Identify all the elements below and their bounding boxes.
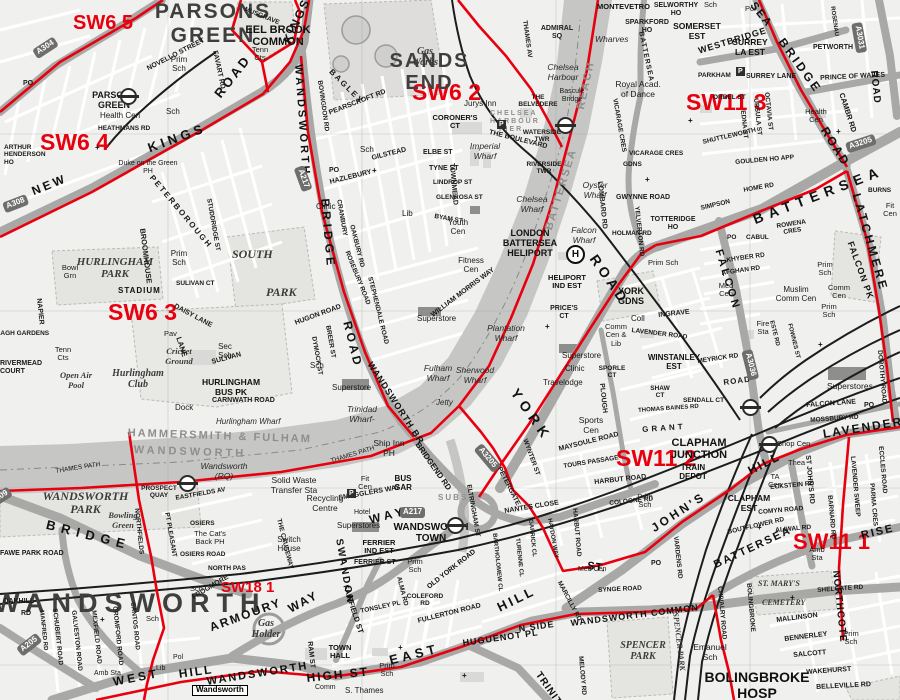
minor-roads-label: COLEFORD RD — [404, 593, 446, 608]
pois-label: Thea — [788, 459, 805, 467]
minor-roads-label: TOURS PASSAGE — [563, 454, 619, 470]
wharves-label: Imperial Wharf — [460, 142, 510, 161]
rail-station-icon — [742, 399, 759, 416]
minor-roads-label: BATTERSEA — [636, 31, 654, 83]
park-labels-label: PARK — [266, 286, 296, 299]
pois-label: Royal Acad. of Dance — [608, 80, 668, 99]
minor-roads-label: STEPHENDALE ROAD — [366, 276, 390, 345]
heliport-icon: H — [566, 245, 585, 264]
minor-roads-label: GALVESTON ROAD — [70, 610, 84, 671]
pier-icon — [557, 117, 574, 134]
rail-station-icon — [761, 436, 778, 453]
minor-roads-label: RIVERSIDE TWR — [523, 161, 565, 176]
minor-roads-label: KHYBER RD — [726, 252, 765, 265]
crosses-label: + — [462, 672, 467, 681]
pois-label: Sch — [146, 615, 159, 623]
places-label: WINSTANLEY EST — [645, 354, 703, 372]
crosses-label: + — [836, 128, 841, 137]
minor-roads-label: NAPIER — [34, 298, 45, 325]
pois-label: Jurys Inn — [464, 100, 496, 109]
pois-label: Health Cen — [798, 108, 834, 125]
town-boxes-label: Wandsworth — [192, 685, 248, 696]
wharves-label: Plantation Wharf — [479, 324, 533, 343]
pois-label: Coll — [631, 315, 645, 324]
pois-label: Switch House — [268, 536, 310, 554]
pois-label: Youth Cen — [441, 219, 475, 237]
pois-label: Superstores — [827, 382, 873, 392]
park-labels-label: Open Air Pool — [52, 371, 100, 390]
pois-label: Sch — [190, 585, 203, 593]
minor-roads-label: ORBEL ST — [713, 94, 746, 101]
pois-label: Sch — [360, 146, 374, 155]
shields-label: A3205 — [845, 134, 876, 153]
minor-roads-label: SIMPSON — [700, 198, 731, 212]
pois-label: Travelodge — [543, 379, 583, 388]
crosses-label: + — [398, 644, 403, 653]
pois-label: Fit Cen — [352, 475, 378, 492]
minor-roads-label: PO — [727, 234, 736, 241]
pois-label: Pav — [164, 330, 177, 338]
pois-label: Tenn Cts — [48, 346, 78, 363]
minor-roads-label: GRANT — [642, 423, 686, 435]
places-label: SOMERSET EST — [668, 22, 726, 41]
minor-roads-label: PO — [23, 80, 33, 88]
pois-label: Prim Sch — [630, 493, 660, 510]
pois-label: Amb Sta — [803, 546, 831, 563]
parking-icon: P — [497, 120, 506, 129]
pois-label: Comm Cen & Lib — [598, 323, 634, 348]
pois-label: Tenn Cts — [245, 46, 275, 63]
pois-label: Superstore — [417, 315, 456, 324]
minor-roads-label: WYNTER ST — [521, 438, 541, 476]
minor-roads-label: TOTTERIDGE HO — [645, 216, 701, 232]
places-label: STADIUM — [118, 287, 161, 296]
minor-roads-label: BENNERLEY — [784, 631, 828, 644]
pois-label: The Cat's Back PH — [184, 530, 236, 547]
pier-icon — [179, 475, 196, 492]
pois-label: Prim Sch — [814, 303, 844, 320]
park-labels-label: Gas Holder — [242, 618, 290, 640]
street-map[interactable]: SW6 5SW6 2SW6 4SW11 3SW6 3SW11 2SW11 1SW… — [0, 0, 900, 700]
pois-label: Prim Sch — [836, 630, 866, 647]
minor-roads-label: HARBUT ROAD — [594, 474, 647, 487]
major-roads-label: TRINITY — [533, 670, 568, 700]
minor-roads-label: GDNS — [623, 161, 642, 168]
minor-roads-label: PARMA CRES — [868, 483, 879, 526]
minor-roads-label: GARRICK CL — [526, 519, 537, 557]
minor-roads-label: ARTHUR HENDERSON HO — [4, 144, 46, 166]
major-roads-label: WAY — [286, 589, 321, 616]
crosses-label: + — [100, 616, 105, 625]
places-label: FERRIER IND EST — [356, 539, 402, 556]
minor-roads-label: RIVERMEAD COURT — [0, 360, 42, 376]
major-roads-label: ROAD — [586, 252, 632, 308]
pois-label: Hotel — [354, 509, 370, 517]
minor-roads-label: SYNGE ROAD — [598, 585, 642, 595]
districts-label: SW6 5 — [73, 12, 133, 34]
pois-label: Fitness Cen — [452, 257, 490, 275]
minor-roads-label: FERRIER ST — [354, 559, 396, 567]
minor-roads-label: GWYNNE ROAD — [616, 194, 670, 202]
river-labels-label: WANDSWORTH — [134, 444, 247, 460]
wharves-label: Chelsea Harbour — [538, 63, 588, 82]
park-labels-label: Hurlingham Club — [104, 368, 172, 390]
minor-roads-label: BOVINGDON RD — [316, 80, 330, 132]
rail-station-icon — [447, 517, 464, 534]
minor-roads-label: NORTH PAS — [208, 565, 246, 572]
pois-label: Comm Cen — [821, 284, 857, 301]
parking-icon: P — [347, 489, 356, 498]
pois-label: Pol — [745, 5, 756, 13]
places-label: CLAPHAM JUNCTION — [660, 437, 738, 462]
minor-roads-label: SALCOTT — [793, 649, 827, 660]
pois-label: Med Cen — [578, 566, 606, 574]
crosses-label: + — [757, 524, 762, 533]
river-labels-label: HAMMERSMITH & FULHAM — [128, 427, 313, 446]
minor-roads-label: RANELAGH GARDENS — [0, 330, 49, 337]
shields-label: A3205 — [474, 443, 501, 473]
pois-label: Prim Sch — [400, 558, 430, 575]
minor-roads-label: OSIERS — [190, 520, 215, 527]
major-roads-label: WANDSWORTH — [206, 660, 309, 688]
park-labels-label: SPENCER PARK — [612, 640, 674, 662]
minor-roads-label: FAWE PARK ROAD — [0, 550, 64, 558]
park-labels-label: CEMETERY — [762, 599, 805, 608]
major-roads-label: OLD YORK ROAD — [426, 548, 478, 591]
minor-roads-label: PO — [651, 560, 661, 568]
pois-label: Emanuel Sch — [686, 643, 734, 662]
major-roads-label: ROAD — [340, 320, 364, 369]
pois-label: Muslim Comm Cen — [766, 286, 826, 304]
pois-label: Duke on the Green PH — [108, 160, 188, 176]
minor-roads-label: LAVENDER SWEEP — [849, 456, 862, 517]
minor-roads-label: PARKHAM — [698, 72, 731, 79]
park-labels-label: ST. MARY'S — [758, 580, 800, 589]
pois-label: TA Cen — [762, 473, 788, 490]
crosses-label: + — [688, 117, 693, 126]
minor-roads-label: BREER ST — [324, 325, 337, 359]
major-roads-label: HIGH ST — [306, 665, 370, 685]
minor-roads-label: PROSPECT QUAY — [137, 485, 181, 500]
minor-roads-label: ROWENA CRES — [770, 217, 814, 238]
minor-roads-label: MELODY RD — [577, 656, 588, 695]
wharves-label: Wharves — [595, 35, 629, 45]
major-roads-label: KINGS — [146, 121, 208, 156]
crosses-label: + — [645, 176, 650, 185]
minor-roads-label: DOROTHY ROAD — [876, 350, 888, 404]
pois-label: Pol — [173, 654, 183, 662]
pois-label: Lib — [402, 210, 413, 219]
pois-label: Shop Cen — [777, 440, 810, 448]
minor-roads-label: HOLMAN RD — [612, 230, 652, 237]
pois-label: Sports Cen — [573, 416, 609, 435]
minor-roads-label: TURENNE CL — [513, 538, 524, 577]
crosses-label: + — [95, 144, 100, 153]
minor-roads-label: FALCON LANE — [806, 399, 856, 410]
pois-label: Fit Cen — [876, 202, 900, 219]
shields-label: A209 — [0, 486, 13, 509]
minor-roads-label: GILSTEAD — [371, 146, 407, 162]
minor-roads-label: CRANBURY — [335, 199, 349, 237]
major-roads-label: WANDSWORTH — [292, 64, 312, 177]
pois-label: Prim Sch — [372, 662, 402, 679]
minor-roads-label: FAVART RD — [210, 50, 226, 90]
pois-label: Lib — [156, 665, 165, 673]
minor-roads-label: PO — [329, 167, 339, 175]
minor-roads-label: CHIVALRY ROAD — [716, 586, 728, 640]
minor-roads-label: SENDALL CT — [683, 397, 724, 404]
major-roads-label: NEW — [30, 172, 69, 198]
minor-roads-label: GLENROSA ST — [436, 194, 483, 201]
crosses-label: + — [372, 167, 377, 176]
minor-roads-label: BARTHOLOMEW CL — [490, 533, 503, 592]
pois-label: Sch — [166, 108, 180, 117]
minor-roads-label: ADMIRAL SQ — [536, 25, 578, 41]
places-label: HURLINGHAM BUS PK — [196, 378, 266, 397]
shields-label: A308 — [2, 194, 29, 213]
minor-roads-label: BOLINGBROKE — [745, 583, 756, 632]
crosses-label: + — [545, 323, 550, 332]
places-label: EEL BROOK COMMON — [228, 24, 328, 49]
wharves-label: Jetty — [436, 399, 453, 408]
places-label: TOWN HALL — [323, 644, 357, 661]
wharves-label: Falcon Wharf — [563, 226, 605, 245]
minor-roads-label: ROSENAU — [828, 6, 839, 37]
places-label: TRAIN DEPOT — [674, 464, 712, 482]
wharves-label: Sherwood Wharf — [450, 366, 500, 385]
wharves-label: Oyster Wharf — [574, 181, 616, 200]
minor-roads-label: SPARKFORD HO — [623, 19, 671, 35]
minor-roads-label: RD — [21, 610, 31, 618]
wharves-label: Chelsea Wharf — [510, 195, 554, 214]
minor-roads-label: HEATHMANS RD — [98, 125, 150, 132]
minor-roads-label: PETERGATE — [495, 466, 521, 507]
pois-label: Prim Sch — [648, 259, 678, 267]
pois-label: Clinic — [316, 203, 336, 212]
crosses-label: + — [818, 341, 823, 350]
rail-station-icon — [120, 88, 137, 105]
pois-label: Recycling Centre — [296, 494, 354, 513]
wharves-label: Trinidad Wharf- — [337, 405, 387, 424]
minor-roads-label: MARCILLY RD — [556, 580, 583, 622]
minor-roads-label: INGRAVE — [658, 309, 690, 320]
minor-roads-label: THOMAS BAINES RD — [638, 404, 699, 415]
places-label: HELIPORT IND EST — [543, 274, 591, 291]
pois-label: Prim Sch — [165, 250, 193, 268]
minor-roads-label: VICARAGE CRES — [611, 98, 628, 153]
minor-roads-label: THAMES AV — [521, 20, 533, 58]
shields-label: A205 — [16, 633, 42, 657]
pois-label: Comm — [315, 684, 336, 692]
minor-roads-label: TONSLEY PL — [360, 600, 401, 616]
minor-roads-label: SULIVAN CT — [176, 280, 215, 287]
river-labels-label: SUBS — [438, 494, 468, 503]
wharves-label: Hurlingham Wharf — [216, 418, 280, 427]
pois-label: Med Cen — [710, 282, 742, 299]
pois-label: Sch — [704, 1, 717, 9]
pois-label: Sec Sch — [212, 343, 238, 361]
pois-label: Prim Sch — [165, 56, 193, 74]
minor-roads-label: OAKHILL — [3, 598, 34, 606]
pois-label: Sch — [310, 362, 324, 371]
pois-label: S. Thames — [345, 687, 384, 696]
wharves-label: Wandsworth (RQ) — [188, 462, 260, 481]
park-labels-label: Gas Works — [404, 46, 446, 68]
minor-roads-label: PETERBOROUGH — [147, 174, 213, 251]
pois-label: Prim Sch — [810, 261, 840, 278]
minor-roads-label: OCTAVIA ST — [763, 92, 774, 131]
minor-roads-label: CABUL — [746, 234, 769, 241]
places-label: LONDON BATTERSEA HELIPORT — [498, 228, 562, 258]
minor-roads-label: PO — [864, 402, 874, 410]
minor-roads-label: CARNWATH ROAD — [212, 397, 275, 405]
map-labels: SW6 5SW6 2SW6 4SW11 3SW6 3SW11 2SW11 1SW… — [0, 0, 900, 700]
minor-roads-label: HARBUT ROAD — [571, 508, 582, 557]
minor-roads-label: HUGON ROAD — [294, 303, 342, 327]
pois-label: Dock — [175, 404, 193, 413]
districts-label: SW6 3 — [108, 300, 177, 326]
minor-roads-label: ELBE ST — [423, 149, 453, 157]
minor-roads-label: MEYRICK RD — [697, 352, 739, 365]
minor-roads-label: FOWNES ST — [785, 323, 800, 359]
minor-roads-label: GOULDEN HO APP — [735, 154, 794, 166]
pois-label: Bowl Grn — [55, 264, 85, 281]
pois-label: Bascule Bridge — [551, 88, 593, 104]
major-roads-label: BRIDGEND RD — [413, 441, 453, 492]
minor-roads-label: SURREY LANE — [746, 73, 796, 81]
pois-label: Fire Sta — [748, 320, 778, 337]
minor-roads-label: PT PLEASANT — [163, 512, 178, 558]
major-roads-label: YORK — [507, 386, 555, 445]
minor-roads-label: BELLEVILLE RD — [816, 681, 871, 692]
pois-label: Amb Sta — [94, 670, 121, 678]
places-label: BOLINGBROKE HOSP — [698, 670, 816, 700]
places-label: MONTEVETRO — [597, 3, 650, 11]
shields-label: A217 — [400, 507, 425, 518]
minor-roads-label: DAISY LANE — [172, 303, 213, 330]
minor-roads-label: BURNS — [868, 187, 891, 194]
pois-label: Superstore — [562, 352, 601, 361]
parking-icon: P — [736, 67, 745, 76]
pois-label: THAMES PATH — [55, 461, 101, 475]
shields-label: A304 — [32, 36, 59, 59]
minor-roads-label: MALLINSON — [776, 612, 818, 625]
minor-roads-label: WAKEHURST — [806, 666, 852, 677]
minor-roads-label: ECCLES ROAD — [877, 446, 888, 494]
minor-roads-label: PLOUGH — [597, 383, 608, 414]
minor-roads-label: RAM ST — [305, 641, 316, 669]
minor-roads-label: SPORLE CT — [595, 365, 629, 380]
places-label: CORONER'S CT — [430, 114, 480, 131]
minor-roads-label: SELWORTHY HO — [652, 2, 700, 18]
crosses-label: + — [790, 594, 795, 603]
minor-roads-label: OSIERS ROAD — [180, 551, 226, 558]
minor-roads-label: LAVENDER ROAD — [631, 327, 688, 341]
minor-roads-label: HAYDON WAY — [545, 518, 559, 559]
minor-roads-label: VICARAGE CRES — [629, 150, 683, 157]
pois-label: Clinic — [565, 365, 585, 374]
minor-roads-label: VARDENS RD — [672, 536, 684, 579]
pois-label: Health Cen — [100, 112, 140, 121]
minor-roads-label: HOME RD — [743, 182, 774, 194]
pois-label: Superstores — [337, 522, 380, 531]
park-labels-label: SOUTH — [232, 248, 273, 261]
minor-roads-label: SHAW CT — [646, 385, 674, 400]
pois-label: Superstore — [332, 384, 371, 393]
minor-roads-label: PRICE'S CT — [545, 305, 583, 321]
